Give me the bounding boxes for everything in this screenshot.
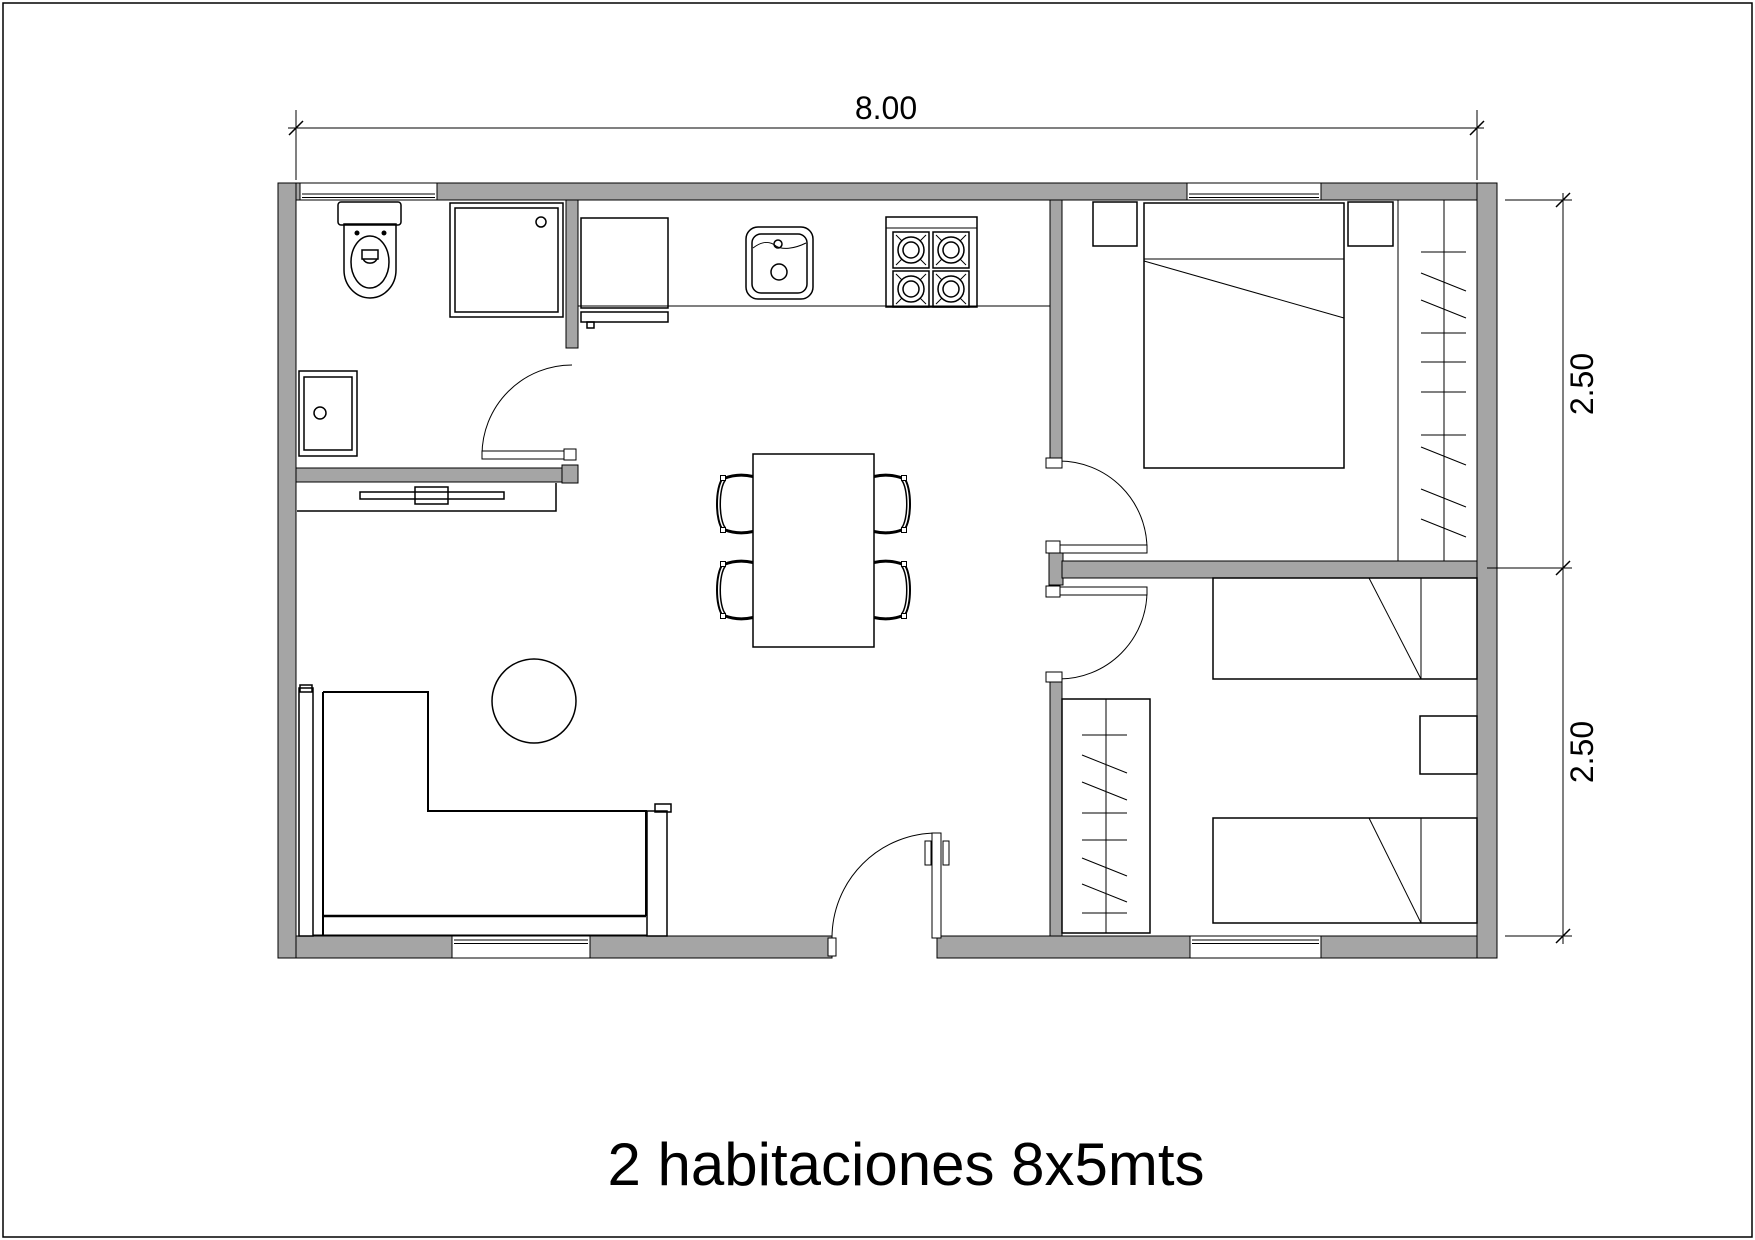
console-shelf	[360, 492, 504, 499]
bathroom-door-icon	[482, 365, 576, 460]
closet-icon	[1398, 200, 1466, 561]
bed-fold-diagonal	[1369, 818, 1421, 923]
door-swing-arc	[832, 833, 937, 938]
wall-central-upper	[1050, 200, 1062, 462]
entrance-door-icon	[828, 833, 949, 956]
sink-inner	[304, 377, 352, 450]
window-icon	[300, 183, 437, 200]
kitchen-sink-icon	[746, 227, 813, 299]
door-jamb	[1046, 458, 1062, 468]
dimension-top: 8.00	[288, 90, 1484, 180]
console-shelf-icon	[297, 483, 556, 511]
chair-icon	[874, 475, 910, 533]
dimension-label-upper: 2.50	[1564, 353, 1600, 415]
kitchen-sink-outer	[746, 227, 813, 299]
wall-between-bedrooms	[1062, 561, 1477, 578]
closet-icon	[1062, 699, 1150, 933]
wall-exterior-right	[1477, 183, 1497, 958]
door-swing-arc	[1059, 461, 1147, 549]
door-handle	[943, 841, 949, 865]
toilet-flush	[362, 250, 378, 259]
sofa-seat-front	[323, 692, 646, 916]
wall-bathroom-south-post	[562, 465, 578, 483]
dimension-label-lower: 2.50	[1564, 721, 1600, 783]
chair-icon	[717, 561, 753, 619]
window-icon	[1187, 183, 1321, 200]
double-bed	[1144, 203, 1344, 468]
door-leaf	[482, 451, 572, 459]
dining-table	[753, 454, 874, 647]
bathroom-sink-icon	[299, 371, 357, 456]
door-swing-arc	[1059, 591, 1147, 679]
single-bed-bottom	[1213, 818, 1477, 923]
wall-bathroom-south	[296, 468, 562, 482]
toilet-seat	[351, 236, 389, 288]
sofa-armrest-left	[299, 688, 313, 936]
sink-drain	[314, 407, 326, 419]
dimension-right: 2.50 2.50	[1487, 193, 1600, 944]
bathroom	[299, 202, 563, 456]
bedroom2-door-icon	[1046, 586, 1147, 682]
wall-exterior-left	[278, 183, 296, 958]
wall-central-block	[1049, 553, 1063, 585]
burner-icon	[893, 232, 929, 268]
living-room	[297, 483, 671, 936]
dining-area	[717, 454, 910, 647]
door-leaf	[1058, 545, 1147, 553]
floor-plan-drawing: 8.00 2.50 2.50 2 habitaciones 8x5mts	[0, 0, 1755, 1240]
walls	[278, 183, 1497, 958]
window-icon	[452, 936, 590, 958]
nightstand	[1093, 202, 1137, 246]
door-leaf	[1058, 587, 1147, 595]
console-knob	[415, 487, 448, 504]
burner-icon	[933, 232, 969, 268]
window-icon	[1190, 936, 1321, 958]
door-leaf	[932, 833, 941, 938]
stove-icon	[886, 217, 977, 307]
refrigerator-icon	[581, 218, 668, 328]
toilet-hinge-left	[355, 231, 360, 236]
toilet-bowl	[344, 224, 396, 298]
floor-plan-canvas: 8.00 2.50 2.50 2 habitaciones 8x5mts	[0, 0, 1755, 1240]
toilet-tank	[338, 202, 401, 225]
nightstand	[1420, 716, 1477, 774]
door-hinge	[564, 449, 576, 460]
door-handle	[925, 841, 931, 865]
burner-icon	[893, 271, 929, 307]
burner-icon	[933, 271, 969, 307]
bedroom1-door-icon	[1046, 458, 1147, 553]
refrigerator-front	[581, 312, 668, 322]
round-table-icon	[492, 659, 576, 743]
wall-bathroom-kitchen-partition	[566, 200, 578, 348]
plan-title: 2 habitaciones 8x5mts	[607, 1131, 1204, 1198]
door-jamb	[1046, 672, 1062, 682]
bedroom-1	[1093, 200, 1466, 561]
bed-fold-diagonal	[1144, 261, 1344, 318]
chair-icon	[874, 561, 910, 619]
chair-icon	[717, 475, 753, 533]
refrigerator-body	[581, 218, 668, 308]
sink-outer	[299, 371, 357, 456]
door-swing-arc	[482, 365, 572, 455]
single-bed-top	[1213, 578, 1477, 679]
kitchen	[578, 217, 1050, 328]
door-hinge	[1046, 541, 1060, 553]
toilet-icon	[338, 202, 401, 298]
shower-icon	[450, 203, 563, 317]
toilet-hinge-right	[382, 231, 387, 236]
nightstand	[1348, 202, 1393, 246]
bed-fold-diagonal	[1369, 578, 1421, 679]
wall-central-lower	[1050, 676, 1062, 936]
shower-drain	[536, 217, 546, 227]
refrigerator-handle	[587, 322, 594, 328]
sofa-armrest-right	[647, 811, 667, 936]
door-jamb	[828, 938, 836, 956]
door-hinge	[1046, 586, 1060, 597]
kitchen-sink-drain	[771, 264, 787, 280]
dimension-label-width: 8.00	[855, 90, 917, 126]
shower-inner	[455, 208, 558, 312]
sofa-icon	[299, 685, 671, 936]
dimension-annotations: 8.00 2.50 2.50	[288, 90, 1600, 944]
bedroom-2	[1062, 578, 1477, 933]
